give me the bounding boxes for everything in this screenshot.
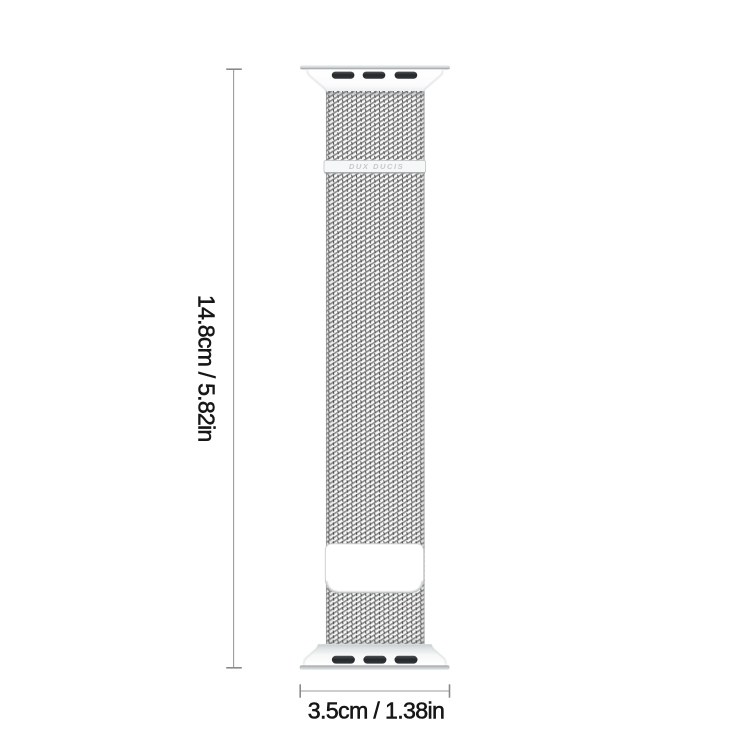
svg-text:DUX DUCIS: DUX DUCIS [349, 162, 404, 171]
svg-text:3.5cm / 1.38in: 3.5cm / 1.38in [308, 698, 445, 724]
svg-text:14.8cm / 5.82in: 14.8cm / 5.82in [194, 295, 220, 442]
